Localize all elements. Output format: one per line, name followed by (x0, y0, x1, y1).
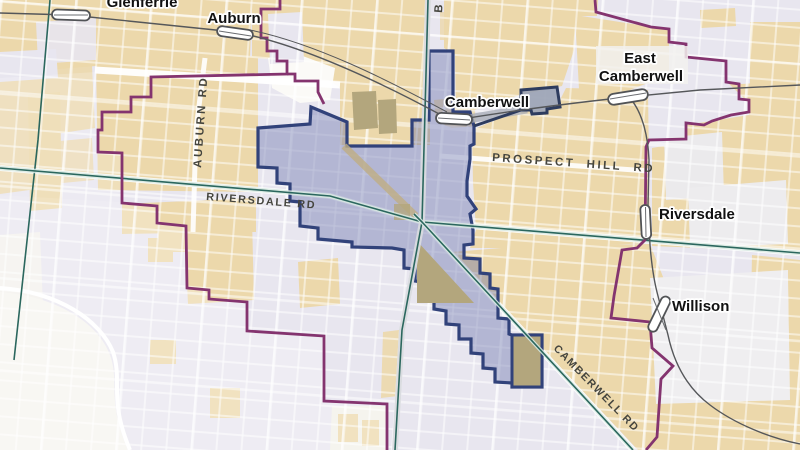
svg-text:East: East (624, 50, 656, 67)
svg-text:Riversdale: Riversdale (659, 206, 735, 223)
svg-text:Camberwell: Camberwell (445, 94, 529, 111)
svg-text:B: B (433, 2, 446, 14)
svg-text:Auburn: Auburn (207, 10, 260, 27)
svg-text:Glenferrie: Glenferrie (107, 0, 178, 11)
svg-text:Camberwell: Camberwell (599, 68, 683, 85)
svg-text:Willison: Willison (672, 298, 729, 315)
